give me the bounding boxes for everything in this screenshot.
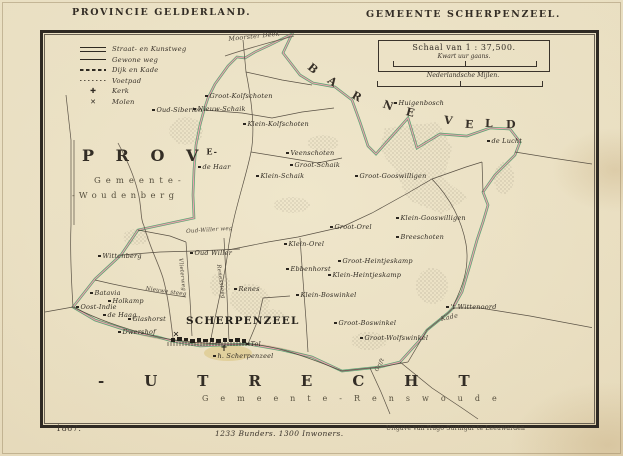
legend-item: Dijk en Kade	[80, 65, 200, 76]
single-line-icon	[80, 59, 106, 60]
neighbor-province-utrecht: -UTRECHT	[98, 372, 510, 390]
double-line-icon	[80, 47, 106, 52]
neighbor-region-letter: L	[485, 117, 493, 130]
neighbor-region-letter: D	[506, 118, 516, 131]
map-sheet: PROVINCIE GELDERLAND. GEMEENTE SCHERPENZ…	[0, 0, 623, 456]
map-label: Klein-Kolfschoten	[243, 120, 309, 128]
legend-item-label: Straat- en Kunstweg	[112, 45, 186, 53]
legend-item-label: Kerk	[112, 87, 129, 95]
map-label: Dwershof	[118, 328, 156, 336]
cross-icon: ✚	[80, 88, 106, 94]
map-label: Groot-Kolfschoten	[205, 92, 273, 100]
map-label: 't Wittenoord	[446, 303, 497, 311]
legend-item-label: Voetpad	[112, 77, 141, 85]
legend-item: Gewone weg	[80, 55, 200, 66]
statistics-label: 1233 Bunders. 1300 Inwoners.	[215, 429, 344, 438]
map-label: de Haar	[198, 163, 231, 171]
scale-walk-label: Kwart uur gaans.	[379, 53, 549, 60]
map-label: de Lucht	[487, 137, 522, 145]
map-label: Oost-Indie	[76, 303, 117, 311]
scale-box: Schaal van 1 : 37,500. Kwart uur gaans.	[378, 40, 550, 72]
map-label: Veenschoten	[286, 149, 334, 157]
town-label-scherpenzeel: SCHERPENZEEL	[186, 315, 300, 327]
dotted-line-icon	[80, 80, 106, 81]
map-label: Oud Willer	[190, 249, 232, 257]
map-label: Groot-Gooswilligen	[355, 172, 426, 180]
legend-item: ✚Kerk	[80, 86, 200, 97]
map-label: Batavia	[90, 289, 121, 297]
map-label: Klein-Orel	[284, 240, 324, 248]
neighbor-region-letter: E	[465, 118, 474, 132]
map-label: Ebbenhorst	[286, 265, 331, 273]
publisher-label: Uitgave van Hugo Suringar te Leeuwarden	[386, 425, 525, 432]
scale-title: Schaal van 1 : 37,500.	[379, 43, 549, 52]
legend-item-label: Molen	[112, 98, 135, 106]
map-label: Klein-Heintjeskamp	[328, 271, 401, 279]
map-label: Groot-Wolfswinkel	[360, 334, 428, 342]
map-label: Wittenberg	[98, 252, 142, 260]
neighbor-gemeente-renswoude: Gemeente-Renswoude	[202, 394, 509, 403]
map-label: Renes	[234, 285, 260, 293]
map-label: Breeschoten	[396, 233, 444, 241]
map-label: Nieuw-Schaik	[193, 105, 246, 113]
map-label: Klein-Gooswilligen	[396, 214, 466, 222]
neighbor-gemeente-woudenberg-line2: -Woudenberg	[72, 191, 179, 201]
legend-item-label: Gewone weg	[112, 56, 158, 64]
legend-item: Voetpad	[80, 76, 200, 87]
legend: Straat- en KunstwegGewone wegDijk en Kad…	[80, 44, 200, 107]
map-label: Tol	[246, 340, 261, 348]
year-label: 1867.	[56, 424, 81, 433]
legend-item-label: Dijk en Kade	[112, 66, 158, 74]
map-label: Groot-Heintjeskamp	[338, 257, 413, 265]
dashed-line-icon	[80, 69, 106, 71]
map-label: Groot-Boswinkel	[334, 319, 396, 327]
scale-miles-label: Nederlandsche Mijlen.	[380, 72, 546, 79]
map-label: Huigenbosch	[394, 99, 444, 107]
map-label: Klein-Boswinkel	[296, 291, 356, 299]
map-label: Glashorst	[128, 315, 166, 323]
scale-bar-walk	[393, 61, 537, 67]
mill-icon: ✕	[80, 99, 106, 105]
neighbor-gemeente-woudenberg-line1: Gemeente-	[94, 176, 186, 186]
neighbor-region-letter: V	[443, 113, 453, 127]
map-label: Klein-Schaik	[256, 172, 304, 180]
map-label: h. Scherpenzeel	[213, 352, 273, 360]
map-label: Groot-Orel	[330, 223, 372, 231]
map-label: Groot-Schaik	[290, 161, 340, 169]
scale-bar-miles	[377, 81, 543, 87]
legend-item: Straat- en Kunstweg	[80, 44, 200, 55]
